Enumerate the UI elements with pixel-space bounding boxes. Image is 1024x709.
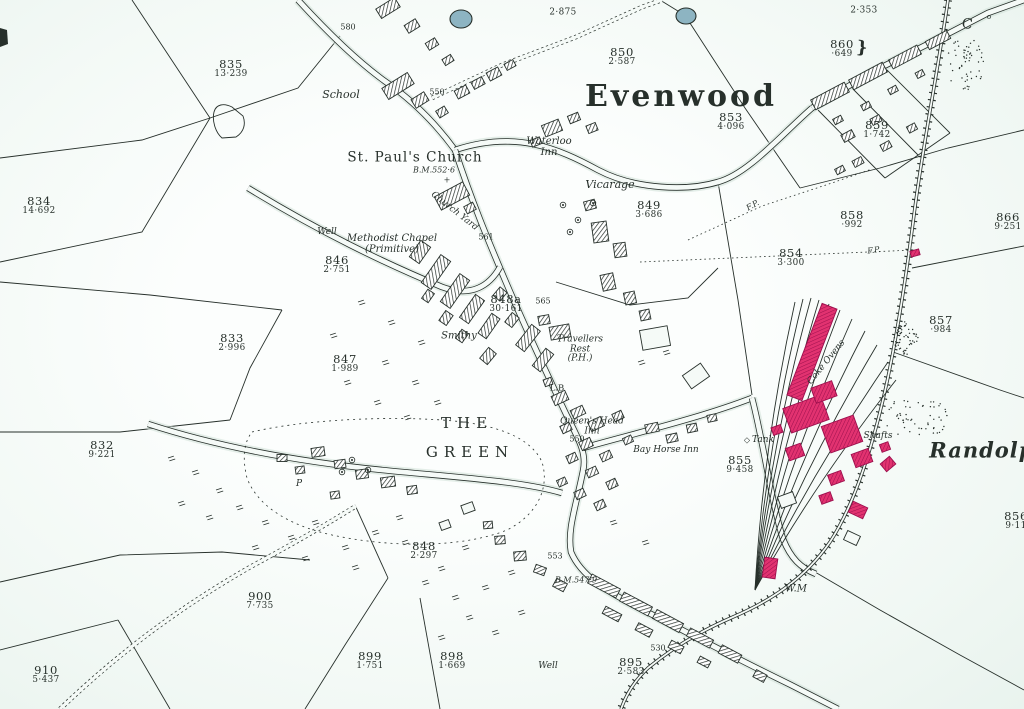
parcel-area: ·984 — [929, 326, 953, 336]
map-label-550: 550 — [429, 89, 444, 98]
parcel-label-849: 8493·686 — [635, 199, 662, 221]
map-label-p: P — [296, 480, 302, 490]
map-label-553: 553 — [547, 553, 562, 562]
the-green-name: THE — [441, 415, 493, 431]
map-label-coke-ovens: Coke Ovens — [806, 339, 848, 387]
parcel-label-834: 83414·692 — [22, 195, 55, 217]
parcel-label-860: 860·649 — [830, 38, 854, 60]
parcel-area: 1·751 — [356, 662, 383, 672]
parcel-label-857: 857·984 — [929, 314, 953, 336]
map-label-vicarage: Vicarage — [585, 179, 634, 191]
map-label-bay-horse-inn: Bay Horse Inn — [633, 446, 698, 456]
parcel-label-899: 8991·751 — [356, 650, 383, 672]
parcel-label-900: 9007·735 — [246, 590, 273, 612]
parcel-area: 1·669 — [438, 662, 465, 672]
parcel-label-848a: 848a30·161 — [489, 293, 522, 315]
parcel-area: 9·458 — [726, 466, 753, 476]
parcel-label-832: 8329·221 — [88, 439, 115, 461]
parcel-label-2-353: 2·353 — [850, 6, 877, 16]
settlement-name: Evenwood — [585, 81, 777, 113]
parcel-label-898: 8981·669 — [438, 650, 465, 672]
parcel-area: 2·297 — [410, 552, 437, 562]
map-label-travellers-rest-p-h: Travellers Rest (P.H.) — [557, 335, 603, 364]
map-label-565: 565 — [535, 298, 550, 307]
parcel-label-835: 83513·239 — [214, 58, 247, 80]
parcel-area: 1·989 — [331, 365, 358, 375]
map-label-f-p: F.P. — [745, 199, 761, 213]
map-label-methodist-chapel-primiti: Methodist Chapel (Primitive) — [347, 234, 437, 256]
map-label-b-m-552-6: B.M.552·6 — [413, 167, 455, 176]
parcel-label-866: 8669·251 — [994, 211, 1021, 233]
parcel-area: 9·11 — [1004, 522, 1024, 532]
map-label-well: Well — [538, 662, 558, 672]
map-label-well: Well — [317, 228, 337, 238]
parcel-label-2-875: 2·875 — [549, 8, 576, 18]
parcel-area: 2·583 — [617, 668, 644, 678]
parcel-area: 30·161 — [489, 305, 522, 315]
church-cross-symbol: + — [444, 177, 451, 186]
parcel-area: 2·353 — [850, 6, 877, 16]
parcel-area: 3·686 — [635, 211, 662, 221]
parcel-label-856: 8569·11 — [1004, 510, 1024, 532]
tank-symbol: ◇ — [744, 437, 750, 446]
parcel-label-859: 8591·742 — [863, 119, 890, 141]
parcel-label-855: 8559·458 — [726, 454, 753, 476]
parcel-label-858: 858·992 — [840, 209, 864, 231]
parcel-area: ·992 — [840, 221, 864, 231]
map-label-school: School — [322, 89, 360, 101]
parcel-label-895: 8952·583 — [617, 656, 644, 678]
map-label-561: 561 — [478, 234, 493, 243]
parcel-area: 14·692 — [22, 207, 55, 217]
map-label-tank: Tank — [752, 436, 774, 446]
map-label-f-p: F.P. — [867, 246, 881, 256]
map-label-w-m: W.M — [785, 585, 807, 596]
parcel-area: 2·875 — [549, 8, 576, 18]
map-label-smithy: Smithy — [441, 332, 477, 343]
parcel-area: 9·221 — [88, 451, 115, 461]
parcel-area: 7·735 — [246, 602, 273, 612]
parcel-area: 2·587 — [608, 58, 635, 68]
the-green-name: GREEN — [426, 444, 514, 460]
map-label-waterloo-inn: Waterloo Inn — [526, 137, 571, 159]
map-label-580: 580 — [340, 24, 355, 33]
map-label-550: 550 — [569, 436, 584, 445]
parcel-label-847: 8471·989 — [331, 353, 358, 375]
parcel-label-853: 8534·096 — [717, 111, 744, 133]
parcel-label-848: 8482·297 — [410, 540, 437, 562]
map-label-l-b: L.B — [550, 384, 565, 393]
map-label-church-yard: Church Yard — [428, 191, 479, 234]
map-labels-layer: 83513·23983414·6922·8758502·5872·353860·… — [0, 0, 1024, 709]
parcel-area: 13·239 — [214, 70, 247, 80]
parcel-label-850: 8502·587 — [608, 46, 635, 68]
randolph-name: Randolph — [929, 440, 1024, 463]
parcel-label-846: 8462·751 — [323, 254, 350, 276]
parcel-area: 1·742 — [863, 131, 890, 141]
map-label-o: o — [987, 14, 991, 22]
parcel-area: 2·996 — [218, 344, 245, 354]
parcel-label-854: 8543·300 — [777, 247, 804, 269]
parcel-area: 2·751 — [323, 266, 350, 276]
os-map-evenwood: 83513·23983414·6922·8758502·5872·353860·… — [0, 0, 1024, 709]
map-label-shafts: Shafts — [864, 432, 893, 442]
parcel-label-833: 8332·996 — [218, 332, 245, 354]
parcel-label-910: 9105·437 — [32, 664, 59, 686]
map-label-c: C — [961, 17, 974, 33]
parcel-area: 5·437 — [32, 676, 59, 686]
map-label-b-m-547-9: B.M.547·9 — [555, 577, 597, 586]
parcel-area: 4·096 — [717, 123, 744, 133]
map-label-530: 530 — [650, 645, 665, 654]
church-name: St. Paul's Church — [347, 151, 482, 166]
parcel-area: 3·300 — [777, 259, 804, 269]
map-label-mark: } — [856, 38, 868, 57]
parcel-area: 9·251 — [994, 223, 1021, 233]
parcel-area: ·649 — [830, 50, 854, 60]
